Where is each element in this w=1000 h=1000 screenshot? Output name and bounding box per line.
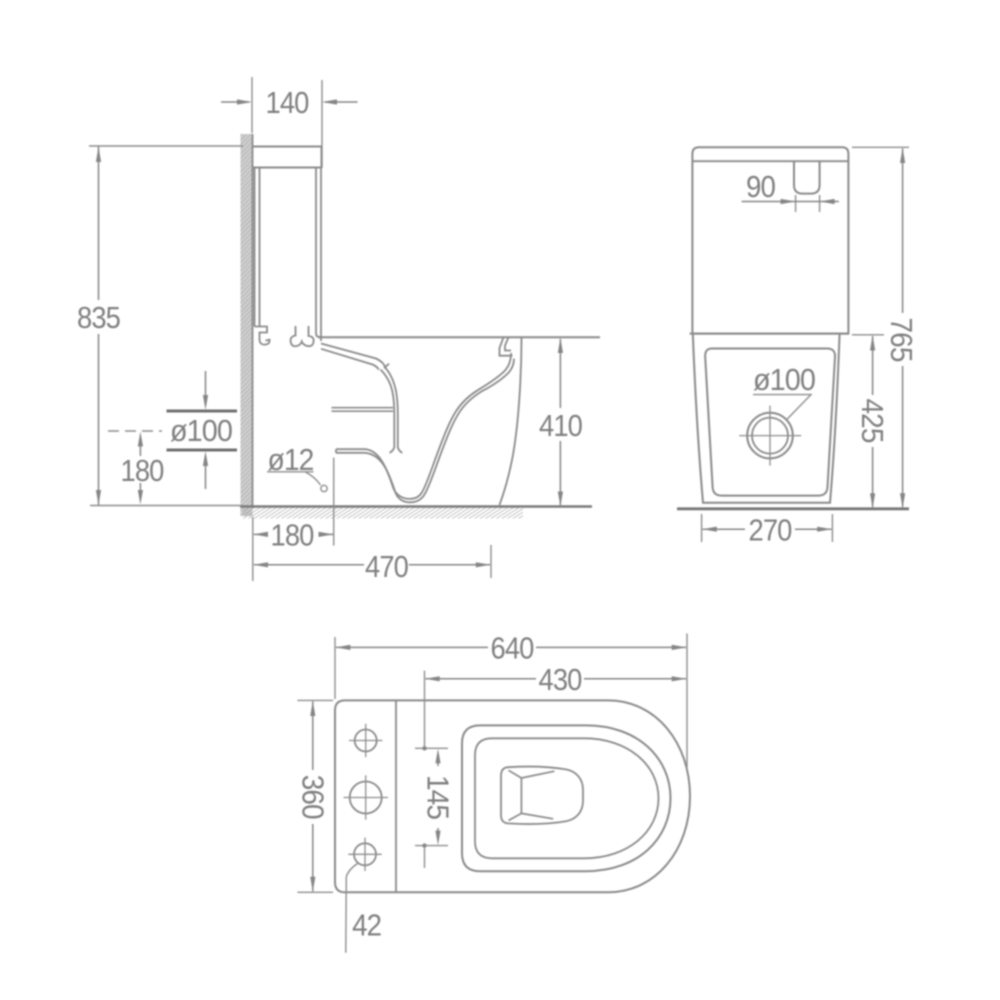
svg-text:765: 765 <box>884 318 919 362</box>
svg-text:430: 430 <box>539 662 583 697</box>
svg-text:470: 470 <box>365 549 409 584</box>
svg-text:270: 270 <box>749 513 793 548</box>
svg-text:640: 640 <box>491 630 535 665</box>
svg-text:425: 425 <box>855 399 890 443</box>
svg-text:ø100: ø100 <box>753 362 816 397</box>
svg-text:145: 145 <box>421 775 456 819</box>
svg-text:90: 90 <box>746 169 776 204</box>
svg-text:360: 360 <box>296 775 331 820</box>
svg-text:180: 180 <box>271 518 315 553</box>
svg-text:180: 180 <box>121 453 165 488</box>
svg-text:140: 140 <box>266 85 310 120</box>
svg-text:42: 42 <box>352 908 381 943</box>
svg-text:835: 835 <box>77 300 120 335</box>
svg-text:ø100: ø100 <box>170 413 233 448</box>
svg-text:410: 410 <box>539 408 583 443</box>
